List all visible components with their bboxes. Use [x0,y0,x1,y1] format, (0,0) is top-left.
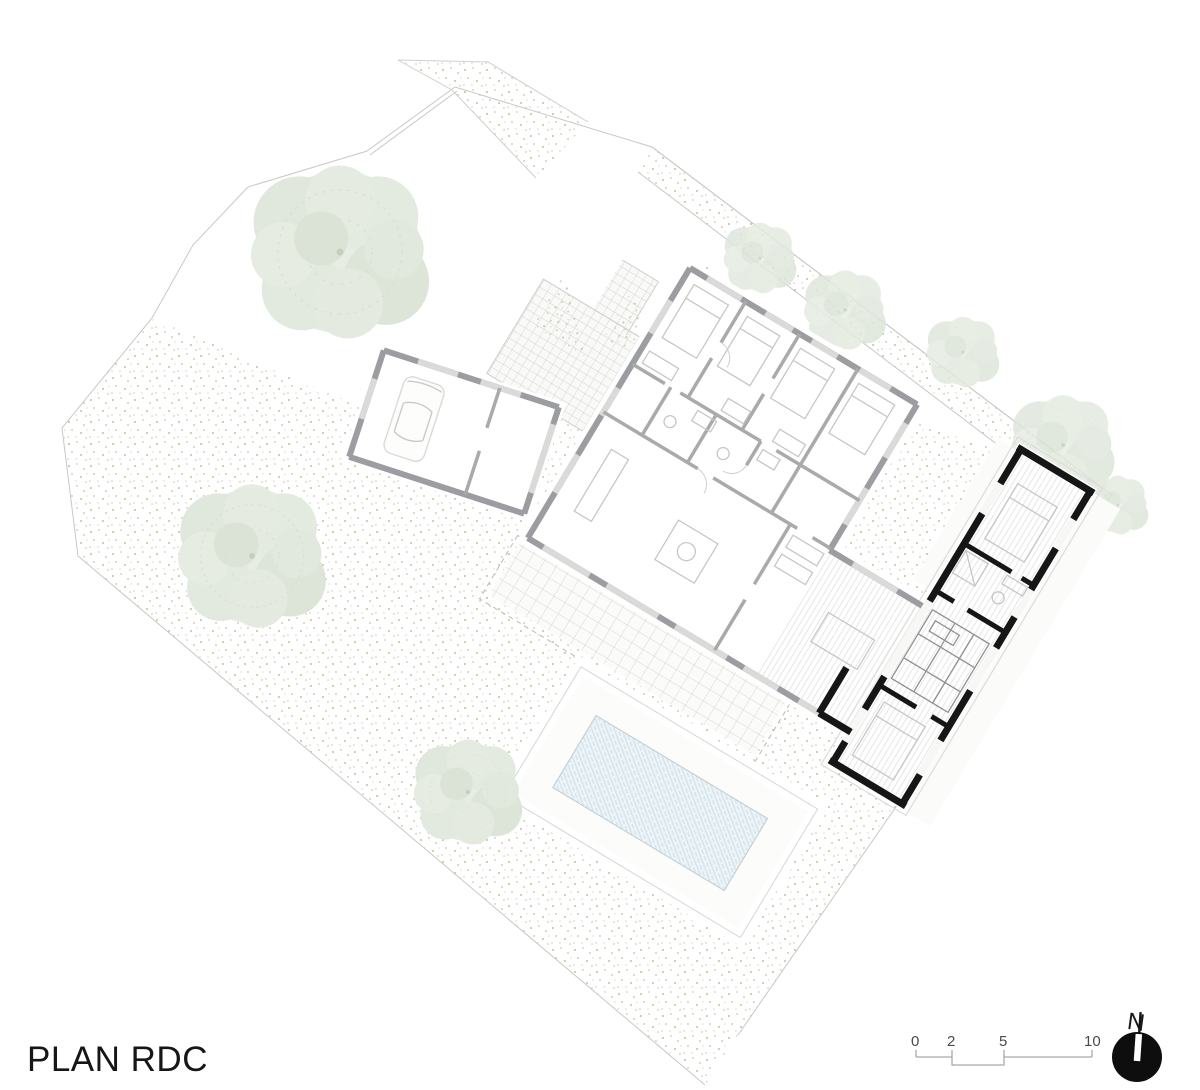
floor-plan-sheet: 0 2 5 10 N PLAN RDC [0,0,1200,1090]
scale-label-10: 10 [1084,1033,1101,1050]
garden-tree [414,740,522,845]
floor-plan-canvas: 0 2 5 10 N [0,0,1200,1090]
scale-label-5: 5 [999,1033,1007,1050]
north-arrow-icon: N [1112,1008,1162,1082]
scale-label-2: 2 [947,1033,955,1050]
scale-label-0: 0 [911,1033,919,1050]
fence-line [370,91,457,155]
scale-bar: 0 2 5 10 [911,1033,1101,1065]
garden-tree [178,484,326,627]
page-title: PLAN RDC [27,1040,208,1080]
large-tree [251,166,429,339]
